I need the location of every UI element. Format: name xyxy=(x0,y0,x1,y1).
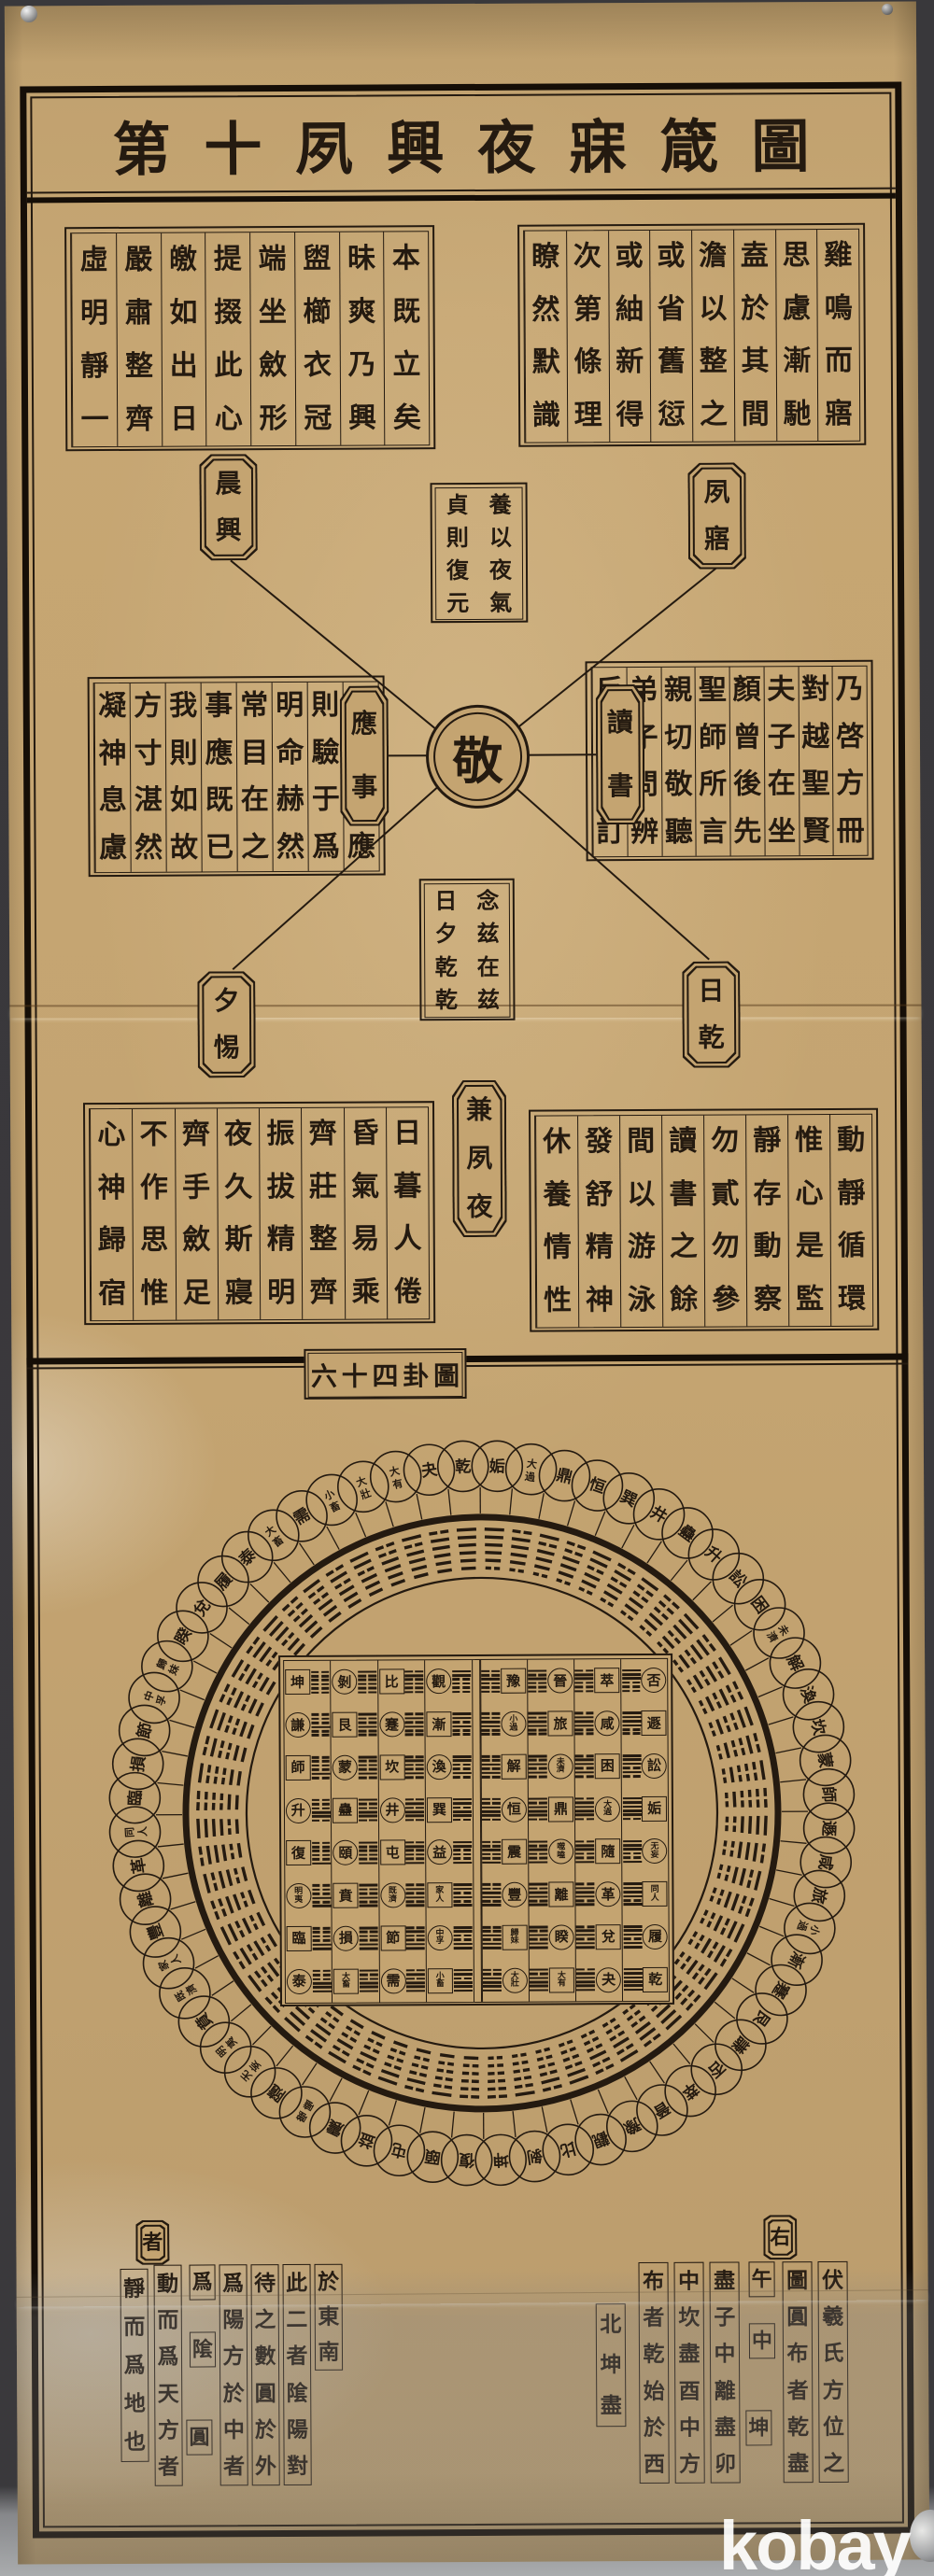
hexagram-name: 大過 xyxy=(595,1796,620,1822)
ring-hexagram-label: 震 xyxy=(323,2115,347,2139)
square-column: 比蹇坎井屯既濟節需 xyxy=(377,1660,426,2002)
hexagram-symbol xyxy=(623,1925,642,1949)
hexagram-name: 兌 xyxy=(596,1924,621,1950)
ring-hexagram-label: 未濟 xyxy=(764,1622,793,1646)
text-column: 端坐斂形 xyxy=(249,232,295,445)
hexagram-symbol xyxy=(453,1883,472,1907)
hexagram-cell: 大有 xyxy=(529,1959,574,2002)
hexagram-name: 鼎 xyxy=(548,1796,573,1822)
square-column: 觀漸渙巽益家人中孚小畜 xyxy=(424,1660,473,2002)
hexagram-name: 家人 xyxy=(427,1882,452,1907)
hexagram-cell: 復 xyxy=(285,1832,332,1875)
hexagram-cell: 姤 xyxy=(622,1787,668,1830)
text-column: 次第條理 xyxy=(566,231,609,442)
svg-text:革: 革 xyxy=(128,1856,149,1875)
hexagram-cell: 噬嗑 xyxy=(529,1830,574,1873)
ring-hexagram-label: 履 xyxy=(212,1570,236,1594)
text-column: 昧爽乃興 xyxy=(339,232,385,444)
ring-hexagram-label: 復 xyxy=(458,2149,476,2170)
hexagram-name: 蒙 xyxy=(333,1754,358,1780)
hexagram-cell: 漸 xyxy=(425,1703,472,1746)
text-column: 靜存動察 xyxy=(745,1115,788,1326)
hexagram-name: 困 xyxy=(595,1753,620,1779)
hexagram-cell: 頤 xyxy=(332,1832,378,1875)
hexagram-cell: 同人 xyxy=(622,1873,668,1916)
hexagram-cell: 咸 xyxy=(574,1702,620,1745)
pushpin xyxy=(882,4,893,15)
watermark: kobay xyxy=(719,2506,910,2576)
ring-hexagram-label: 革 xyxy=(128,1856,149,1875)
hexagram-symbol xyxy=(405,1713,424,1737)
hexagram-name: 艮 xyxy=(333,1712,358,1738)
hexagram-cell: 否 xyxy=(621,1659,667,1702)
square-half: 豫小過解恒震豐歸妹大壯晉旅未濟鼎噬嗑離睽大有萃咸困大過隨革兌夬否遯訟姤无妄同人履… xyxy=(480,1659,669,2002)
hexagram-cell: 節 xyxy=(379,1917,426,1960)
hexagram-symbol xyxy=(312,1970,331,1993)
ring-hexagram-label: 臨 xyxy=(125,1790,146,1807)
hexagram-name: 豐 xyxy=(502,1882,527,1907)
svg-text:晉: 晉 xyxy=(650,2097,673,2121)
annotation-column: 布者乾始於西 xyxy=(638,2262,669,2484)
hexagram-symbol xyxy=(530,1926,548,1950)
hexagram-symbol xyxy=(406,1926,425,1950)
ring-hexagram-label: 坎 xyxy=(807,1717,830,1738)
text-column: 方寸湛然 xyxy=(130,683,166,872)
svg-text:復: 復 xyxy=(458,2149,476,2170)
ring-hexagram-label: 損 xyxy=(128,1753,149,1773)
hexagram-symbol xyxy=(482,1798,501,1822)
text-block-evening-rest: 日暮人倦昏氣易乘齊莊整齊振拔精明夜久斯寢齊手斂足不作思惟心神歸宿 xyxy=(83,1101,435,1325)
hexagram-cell: 離 xyxy=(529,1873,574,1916)
text-column: 振拔精明 xyxy=(259,1108,302,1319)
hexagram-symbol xyxy=(453,1798,472,1822)
hexagram-name: 咸 xyxy=(595,1710,620,1736)
bottom-annotation-diagram: 右伏羲氏方位之圖圓布者乾盡午中坤盡子中離盡卯中坎盡酉中方布者乾始於西北坤盡者於東… xyxy=(37,2209,908,2522)
hexagram-cell: 萃 xyxy=(574,1659,620,1702)
hexagram-name: 晉 xyxy=(547,1668,573,1694)
text-column: 貞則復元 xyxy=(436,488,480,619)
hexagram-symbol xyxy=(575,1797,594,1821)
hexagram-cell: 蒙 xyxy=(332,1746,378,1789)
hexagram-symbol xyxy=(575,1669,594,1693)
text-column: 日暮人倦 xyxy=(386,1107,429,1318)
hexagram-symbol xyxy=(359,1756,377,1780)
annotation-column: 坤 xyxy=(745,2410,771,2445)
hexagram-symbol xyxy=(529,1755,547,1779)
hexagram-name: 訟 xyxy=(642,1753,667,1779)
hexagram-name: 需 xyxy=(380,1968,405,1993)
hexagram-cell: 无妄 xyxy=(622,1830,668,1873)
svg-text:隨: 隨 xyxy=(264,2080,289,2105)
hexagram-symbol xyxy=(452,1755,471,1779)
hexagram-cell: 巽 xyxy=(426,1788,473,1831)
text-column: 日夕乾乾 xyxy=(425,884,468,1017)
text-column: 皦如出日 xyxy=(161,232,206,445)
ring-hexagram-label: 蠱 xyxy=(675,1521,700,1546)
hexagram-name: 謙 xyxy=(285,1712,310,1738)
text-column: 心神歸宿 xyxy=(90,1109,133,1320)
hexagram-cell: 艮 xyxy=(332,1703,378,1746)
hexagram-name: 萃 xyxy=(594,1668,619,1694)
text-column: 瞭然默識 xyxy=(524,231,567,442)
hexagram-cell: 大過 xyxy=(575,1787,621,1830)
svg-text:井: 井 xyxy=(647,1502,671,1527)
square-column: 坤謙師升復明夷臨泰 xyxy=(284,1661,332,2003)
hexagram-name: 臨 xyxy=(286,1926,311,1951)
svg-text:鼎: 鼎 xyxy=(555,1466,574,1487)
text-block-cock-crow: 雞鳴而寤思慮漸馳盍於其間澹以整之或省舊愆或紬新得次第條理瞭然默識 xyxy=(517,223,866,447)
text-column: 盥櫛衣冠 xyxy=(294,232,340,445)
annotation-column: 爲 xyxy=(190,2264,216,2300)
svg-text:震: 震 xyxy=(323,2115,347,2139)
svg-text:損: 損 xyxy=(128,1753,149,1773)
hexagram-name: 歸妹 xyxy=(502,1925,528,1950)
annotation-column: 中坎盡酉中方 xyxy=(673,2262,704,2484)
ring-hexagram-label: 大畜 xyxy=(262,1523,287,1550)
text-column: 讀書之餘 xyxy=(661,1116,704,1327)
text-column: 虛明靜一 xyxy=(71,233,117,446)
hexagram-symbol xyxy=(528,1669,546,1693)
hexagram-symbol xyxy=(576,1840,595,1864)
ring-hexagram-label: 訟 xyxy=(725,1567,750,1592)
text-column: 念兹在兹 xyxy=(467,884,510,1017)
ring-hexagram-label: 解 xyxy=(783,1652,807,1674)
ring-hexagram-label: 鼎 xyxy=(555,1466,574,1487)
text-column: 夫子在坐 xyxy=(763,667,799,855)
square-half: 坤謙師升復明夷臨泰剝艮蒙蠱頤賁損大畜比蹇坎井屯既濟節需觀漸渙巽益家人中孚小畜 xyxy=(284,1660,473,2003)
hexagram-symbol xyxy=(529,1712,547,1736)
ring-hexagram-label: 睽 xyxy=(171,1625,196,1648)
hexagram-symbol xyxy=(482,1755,501,1779)
hexagram-symbol xyxy=(482,1712,501,1736)
hexagram-cell: 小畜 xyxy=(427,1959,474,2002)
hexagram-symbol xyxy=(529,1797,547,1821)
pushpin xyxy=(21,6,37,22)
hexagram-cell: 豫 xyxy=(481,1660,527,1703)
hexagram-name: 革 xyxy=(596,1881,621,1907)
tablet-ri-qian: 日乾 xyxy=(682,961,741,1067)
ring-hexagram-label: 困 xyxy=(747,1594,771,1618)
svg-text:大: 大 xyxy=(388,1464,401,1479)
square-column: 剝艮蒙蠱頤賁損大畜 xyxy=(330,1661,378,2003)
text-column: 明命赫然 xyxy=(272,683,308,871)
ring-hexagram-label: 謙 xyxy=(728,2033,753,2058)
annotation-column: 北坤盡 xyxy=(596,2303,627,2427)
hexagram-cell: 坤 xyxy=(284,1661,331,1704)
ring-hexagram-label: 泰 xyxy=(235,1544,261,1570)
svg-text:需: 需 xyxy=(290,1505,314,1529)
svg-text:困: 困 xyxy=(747,1594,771,1618)
hexagram-cell: 中孚 xyxy=(427,1916,474,1959)
tablet-xi-ti: 夕惕 xyxy=(197,971,256,1077)
square-column: 晉旅未濟鼎噬嗑離睽大有 xyxy=(527,1659,575,2001)
hexagram-symbol xyxy=(530,1883,548,1907)
ring-hexagram-label: 噬嗑 xyxy=(294,2097,317,2125)
hexagram-name: 節 xyxy=(380,1925,405,1950)
hexagram-cell: 大畜 xyxy=(333,1960,379,2003)
hexagram-name: 豫 xyxy=(501,1668,526,1694)
hexagram-symbol xyxy=(576,1968,595,1992)
hexagram-symbol xyxy=(453,1841,472,1865)
hexagram-symbol xyxy=(312,1884,331,1907)
hexagram-name: 未濟 xyxy=(548,1753,573,1779)
svg-text:升: 升 xyxy=(701,1543,726,1568)
hexagram-symbol xyxy=(359,1798,377,1822)
annotation-header-tablet: 右 xyxy=(763,2215,797,2259)
hexagram-cell: 豐 xyxy=(482,1873,528,1916)
text-column: 發舒精神 xyxy=(577,1116,620,1327)
hexagram-symbol xyxy=(360,1969,378,1992)
hexagram-cell: 遯 xyxy=(621,1702,667,1745)
annotation-header-tablet: 者 xyxy=(135,2220,169,2265)
hexagram-name: 賁 xyxy=(333,1883,359,1908)
hexagram-symbol xyxy=(453,1926,472,1950)
text-column: 聖師所言 xyxy=(695,668,730,856)
reverence-circle: 敬 xyxy=(426,705,531,809)
hexagram-symbol xyxy=(406,1884,425,1907)
text-block-morning-rise: 本既立矣昧爽乃興盥櫛衣冠端坐斂形提掇此心皦如出日嚴肅整齊虛明靜一 xyxy=(64,225,435,451)
hexagram-cell: 夬 xyxy=(576,1958,622,2001)
text-column: 親切敬聽 xyxy=(660,668,696,856)
hexagram-symbol xyxy=(311,1670,330,1694)
annotation-column: 待之數圓於外 xyxy=(251,2264,280,2485)
title-band: 圖箴寐夜興夙十第 xyxy=(26,89,896,204)
hexagram-symbol xyxy=(623,1968,642,1992)
box-nourish-night-qi: 養以夜氣貞則復元 xyxy=(431,483,529,624)
text-column: 不作思惟 xyxy=(132,1109,175,1320)
svg-text:萃: 萃 xyxy=(678,2078,702,2104)
svg-text:臨: 臨 xyxy=(125,1790,146,1807)
hexagram-name: 漸 xyxy=(426,1711,451,1737)
hexagram-name: 噬嗑 xyxy=(548,1839,573,1865)
hexagram-symbol xyxy=(622,1797,641,1821)
hexagram-name: 否 xyxy=(641,1668,666,1693)
svg-text:泰: 泰 xyxy=(235,1544,261,1570)
hexagram-cell: 兌 xyxy=(575,1916,621,1959)
hexagram-cell: 渙 xyxy=(426,1745,473,1788)
hexagram-symbol xyxy=(311,1799,330,1823)
hexagram-name: 蹇 xyxy=(379,1711,404,1737)
photo-stage: 圖箴寐夜興夙十第 本既立矣昧爽乃興盥櫛衣冠端坐斂形提掇此心皦如出日嚴肅整齊虛明 xyxy=(0,0,934,2576)
svg-text:有: 有 xyxy=(391,1476,404,1491)
text-column: 嚴肅整齊 xyxy=(116,233,162,446)
hexagram-cell: 睽 xyxy=(529,1916,574,1959)
svg-text:比: 比 xyxy=(558,2138,578,2161)
hexagram-cell: 未濟 xyxy=(528,1745,573,1788)
hexagram-cell: 乾 xyxy=(623,1958,669,2001)
hexagram-cell: 蠱 xyxy=(332,1789,378,1832)
svg-text:解: 解 xyxy=(783,1652,807,1674)
hexagram-cell: 訟 xyxy=(621,1744,667,1787)
hexagram-cell: 解 xyxy=(481,1745,527,1788)
hexagram-cell: 臨 xyxy=(286,1917,333,1960)
hexagram-name: 師 xyxy=(285,1755,310,1781)
text-column: 凝神息慮 xyxy=(94,683,131,872)
hexagram-name: 明夷 xyxy=(286,1883,311,1908)
hexagram-name: 既濟 xyxy=(380,1882,405,1907)
svg-text:漸: 漸 xyxy=(785,1949,809,1971)
hexagram-cell: 歸妹 xyxy=(482,1916,528,1959)
hexagram-name: 睽 xyxy=(549,1924,574,1950)
text-column: 常目在之 xyxy=(236,683,273,871)
hexagram-name: 履 xyxy=(643,1924,668,1950)
admonition-diagram-section: 本既立矣昧爽乃興盥櫛衣冠端坐斂形提掇此心皦如出日嚴肅整齊虛明靜一 雞鳴而寤思慮漸… xyxy=(27,193,901,1358)
ring-hexagram-label: 頤 xyxy=(423,2146,443,2166)
ring-hexagram-label: 蹇 xyxy=(768,1978,793,2003)
hexagram-cell: 隨 xyxy=(575,1830,621,1873)
svg-text:夬: 夬 xyxy=(420,1459,440,1481)
hexagram-cell: 觀 xyxy=(425,1660,472,1703)
hexagram-cell: 坎 xyxy=(378,1746,425,1789)
square-column: 豫小過解恒震豐歸妹大壯 xyxy=(480,1660,529,2002)
hexagram-name: 大壯 xyxy=(502,1967,528,1992)
tablet-ying-shi: 應事 xyxy=(340,685,389,825)
annotation-column: 圓 xyxy=(186,2419,212,2455)
hexagram-cell: 既濟 xyxy=(379,1874,426,1917)
hexagram-symbol xyxy=(530,1968,548,1992)
hexagram-cell: 剝 xyxy=(331,1661,377,1704)
hexagram-name: 泰 xyxy=(287,1969,312,1994)
hexagram-symbol xyxy=(529,1840,547,1864)
text-column: 勿貳勿參 xyxy=(703,1115,746,1326)
annotation-column: 盡子中離盡卯 xyxy=(709,2261,740,2483)
hexagram-name: 姤 xyxy=(642,1796,667,1822)
annotation-column: 圖圓布者乾盡 xyxy=(782,2261,813,2483)
hexagram-name: 復 xyxy=(286,1840,311,1865)
hexagram-symbol xyxy=(622,1669,641,1693)
hexagram-cell: 震 xyxy=(482,1831,528,1874)
annotation-column: 於東南 xyxy=(315,2264,344,2371)
hexagram-cell: 困 xyxy=(574,1745,620,1788)
ring-hexagram-label: 豫 xyxy=(620,2114,643,2138)
hexagram-name: 頤 xyxy=(333,1840,358,1865)
annotation-column: 動而爲天方者 xyxy=(154,2265,183,2486)
svg-text:坎: 坎 xyxy=(807,1717,830,1738)
ring-hexagram-label: 需 xyxy=(290,1505,314,1529)
tablet-chen-xing: 晨興 xyxy=(199,454,258,560)
text-column: 對越聖賢 xyxy=(798,667,833,855)
svg-text:同: 同 xyxy=(123,1827,136,1838)
hexagram-name: 夬 xyxy=(596,1967,621,1992)
hexagram-name: 旅 xyxy=(547,1711,573,1737)
hexagram-cell: 益 xyxy=(426,1831,473,1874)
hexagram-symbol xyxy=(454,1969,473,1992)
ring-hexagram-label: 師 xyxy=(818,1786,839,1803)
text-block-motion-stillness: 動靜循環惟心是監靜存動察勿貳勿參讀書之餘間以游泳發舒精神休養情性 xyxy=(529,1108,879,1332)
hexagram-name: 損 xyxy=(333,1925,359,1950)
text-column: 澹以整之 xyxy=(691,230,734,441)
hexagram-name: 坎 xyxy=(379,1754,404,1780)
tablet-jian-su-ye: 兼夙夜 xyxy=(452,1080,507,1237)
hexagram-name: 震 xyxy=(502,1839,527,1865)
ring-hexagram-label: 萃 xyxy=(678,2078,702,2104)
hexagram-cell: 蹇 xyxy=(378,1703,425,1746)
ring-hexagram-label: 井 xyxy=(647,1502,671,1527)
hexagram-symbol xyxy=(483,1969,502,1992)
text-column: 顏曾後先 xyxy=(729,667,765,855)
ring-hexagram-label: 大有 xyxy=(388,1464,404,1492)
annotation-column: 伏羲氏方位之 xyxy=(817,2261,848,2483)
svg-text:頤: 頤 xyxy=(423,2146,443,2166)
hexagram-cell: 損 xyxy=(333,1917,379,1960)
hexagram-name: 比 xyxy=(379,1669,404,1695)
annotation-column: 靜而爲地也 xyxy=(120,2269,149,2462)
annotation-column: 午 xyxy=(748,2261,774,2297)
svg-text:坤: 坤 xyxy=(492,2149,509,2170)
hexagram-symbol xyxy=(576,1883,595,1907)
text-column: 或紬新得 xyxy=(608,231,651,442)
fuxi-square-arrangement: 坤謙師升復明夷臨泰剝艮蒙蠱頤賁損大畜比蹇坎井屯既濟節需觀漸渙巽益家人中孚小畜豫小… xyxy=(278,1654,674,2006)
ring-hexagram-label: 賁 xyxy=(191,2009,217,2034)
ring-hexagram-label: 咸 xyxy=(814,1853,836,1872)
hexagram-name: 无妄 xyxy=(642,1838,667,1864)
hexagram-symbol xyxy=(406,1969,425,1992)
svg-text:姤: 姤 xyxy=(488,1457,505,1477)
annotation-column: 隂 xyxy=(190,2331,216,2367)
hexagram-name: 井 xyxy=(379,1797,404,1823)
hexagram-cell: 晉 xyxy=(528,1659,573,1702)
ring-hexagram-label: 既濟 xyxy=(173,1981,200,2003)
square-column: 否遯訟姤无妄同人履乾 xyxy=(620,1659,669,2001)
ring-hexagram-label: 歸妹 xyxy=(153,1655,182,1678)
hexagram-chart-section: 圖卦四十六 乾夬大有大壯小畜需大畜泰履兌睽歸妹中孚節損臨同人革離豐家人既濟賁明夷… xyxy=(33,1354,907,2342)
hexagram-symbol xyxy=(576,1925,595,1949)
hexagram-symbol xyxy=(623,1882,642,1906)
hexagram-name: 渙 xyxy=(427,1754,452,1780)
text-column: 提掇此心 xyxy=(205,232,250,445)
hexagram-symbol xyxy=(481,1669,500,1693)
text-column: 我則如故 xyxy=(165,683,202,871)
hexagram-name: 升 xyxy=(286,1798,311,1823)
hexagram-symbol xyxy=(452,1670,471,1694)
hexagram-symbol xyxy=(358,1713,376,1737)
hexagram-name: 隨 xyxy=(595,1839,620,1865)
svg-text:咸: 咸 xyxy=(814,1853,836,1872)
hexagram-symbol xyxy=(312,1927,331,1950)
ring-hexagram-label: 剝 xyxy=(525,2145,544,2166)
hexagram-cell: 大壯 xyxy=(482,1959,528,2002)
hexagram-symbol xyxy=(405,1755,424,1779)
text-column: 動靜循環 xyxy=(829,1115,872,1326)
tablet-du-shu: 讀書 xyxy=(596,684,645,824)
box-think-on-this: 念兹在兹日夕乾乾 xyxy=(419,879,516,1021)
hexagram-cell: 鼎 xyxy=(528,1788,573,1831)
hexagram-cell: 屯 xyxy=(379,1831,426,1874)
hexagram-symbol xyxy=(483,1883,502,1907)
hexagram-cell: 革 xyxy=(575,1873,621,1916)
hexagram-symbol xyxy=(359,1841,377,1865)
ring-hexagram-label: 夬 xyxy=(420,1459,440,1481)
hexagram-symbol xyxy=(622,1754,641,1778)
hexagram-cell: 師 xyxy=(285,1746,332,1789)
hexagram-symbol xyxy=(575,1754,594,1778)
text-column: 休養情性 xyxy=(535,1116,578,1327)
ring-hexagram-label: 否 xyxy=(704,2056,729,2081)
hexagram-name: 屯 xyxy=(380,1840,405,1865)
svg-text:人: 人 xyxy=(135,1825,149,1837)
hexagram-cell: 旅 xyxy=(528,1702,573,1745)
annotation-column: 中 xyxy=(749,2323,775,2358)
svg-text:過: 過 xyxy=(523,1470,537,1485)
annotation-column: 此二者隂陽對 xyxy=(283,2264,312,2485)
svg-text:履: 履 xyxy=(212,1570,236,1594)
hexagram-name: 乾 xyxy=(643,1967,668,1992)
text-column: 本既立矣 xyxy=(383,232,429,444)
hexagram-name: 離 xyxy=(548,1882,573,1907)
hexagram-name: 恒 xyxy=(502,1796,527,1822)
text-column: 齊手斂足 xyxy=(175,1108,218,1319)
svg-text:訟: 訟 xyxy=(725,1567,750,1592)
